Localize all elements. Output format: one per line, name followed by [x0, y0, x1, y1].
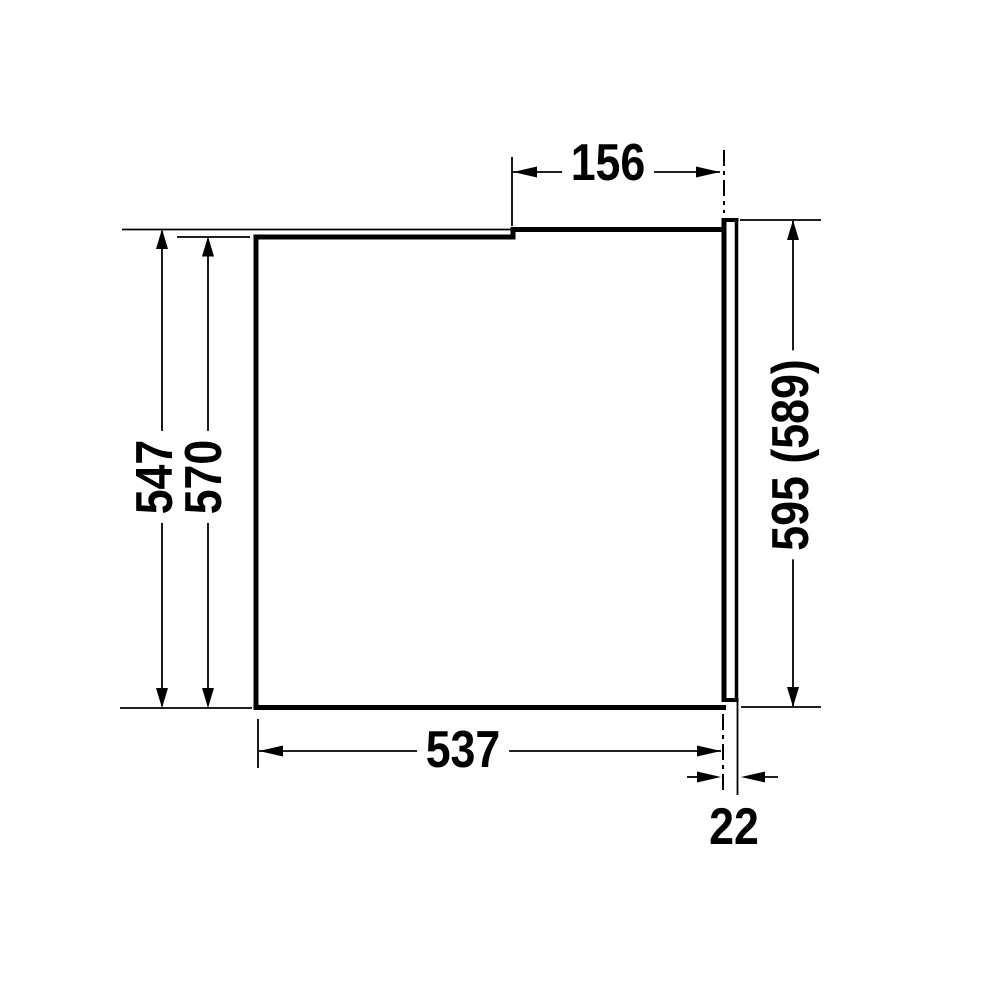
dim-bottom-label: 537 [417, 724, 509, 776]
dim-door-label: 22 [701, 801, 768, 853]
arrow-up-icon [787, 220, 799, 240]
arrow-down-icon [787, 687, 799, 707]
installation-dimension-diagram: 156 547 570 595 (589) 537 22 [0, 0, 1000, 1000]
dim-right-label: 595 (589) [765, 351, 817, 560]
dim-door [687, 772, 778, 783]
arrow-down-icon [156, 688, 168, 708]
arrow-right-icon [697, 772, 721, 783]
arrow-left-icon [741, 772, 765, 783]
arrow-up-icon [156, 229, 168, 249]
arrow-left-icon [513, 167, 537, 178]
dim-top-label: 156 [562, 137, 654, 189]
door-panel [722, 218, 739, 702]
arrow-right-icon [696, 167, 720, 178]
arrow-up-icon [202, 237, 214, 257]
dim-left-inner-label: 570 [178, 431, 230, 523]
arrow-down-icon [202, 688, 214, 708]
arrow-right-icon [697, 746, 721, 757]
dim-left-outer-label: 547 [129, 431, 181, 523]
appliance-body-outline [254, 227, 727, 710]
arrow-left-icon [259, 746, 283, 757]
